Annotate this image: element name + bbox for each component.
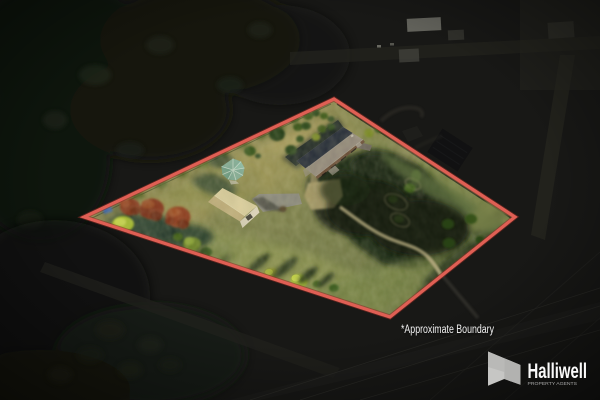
svg-text:Halliwell: Halliwell <box>528 360 588 383</box>
svg-text:PROPERTY AGENTS: PROPERTY AGENTS <box>528 381 578 387</box>
svg-text:*Approximate Boundary: *Approximate Boundary <box>401 324 494 336</box>
